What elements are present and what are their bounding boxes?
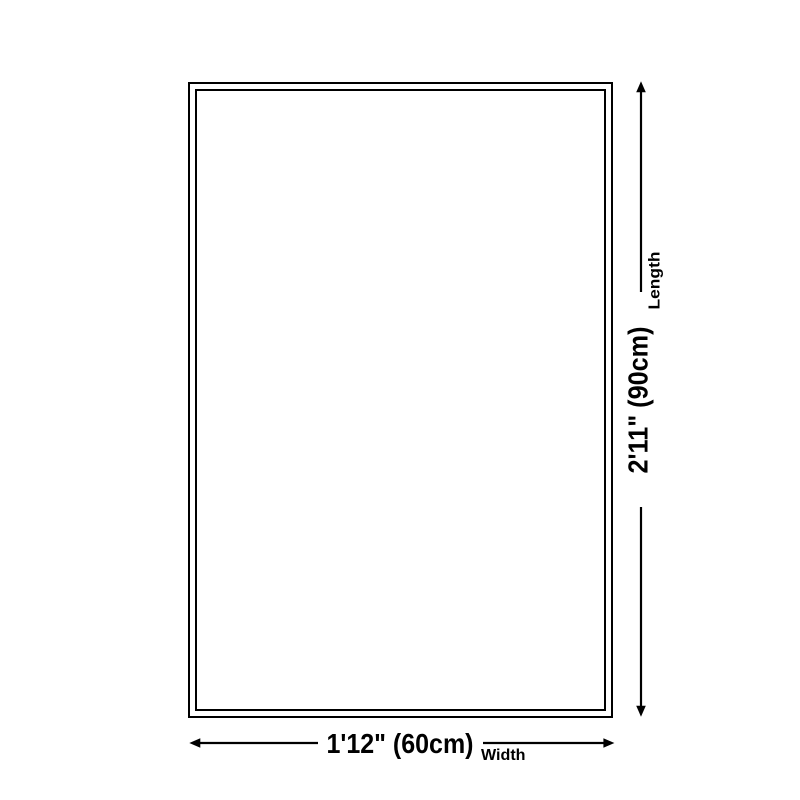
svg-text:Width: Width: [481, 747, 526, 764]
svg-text:1'12" (60cm): 1'12" (60cm): [327, 728, 474, 759]
svg-text:2'11" (90cm): 2'11" (90cm): [623, 327, 654, 474]
svg-text:Length: Length: [647, 252, 664, 310]
